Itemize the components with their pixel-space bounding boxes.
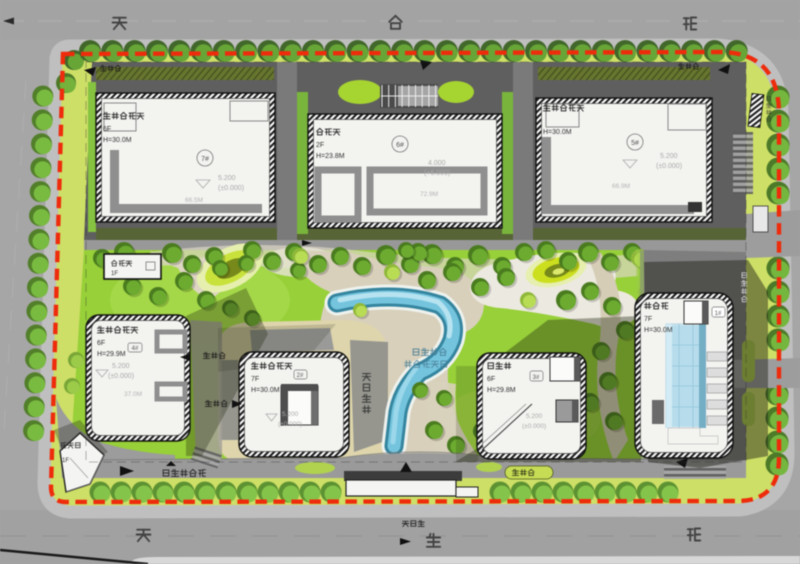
svg-text:7#: 7# xyxy=(201,156,209,163)
svg-text:4.000: 4.000 xyxy=(428,160,446,167)
svg-text:5.200: 5.200 xyxy=(526,413,543,420)
svg-text:(±0.000): (±0.000) xyxy=(278,421,302,428)
svg-text:1F: 1F xyxy=(111,271,118,277)
svg-text:H=30.0M: H=30.0M xyxy=(644,327,673,334)
svg-text:6F: 6F xyxy=(487,376,495,383)
svg-text:(±0.000): (±0.000) xyxy=(218,185,244,192)
svg-text:6F: 6F xyxy=(103,126,111,133)
svg-text:(±0.000): (±0.000) xyxy=(108,373,134,380)
svg-text:1#: 1# xyxy=(715,311,722,317)
svg-text:H=30.0M: H=30.0M xyxy=(543,129,572,136)
svg-text:H=29.9M: H=29.9M xyxy=(97,351,126,358)
svg-text:37.0M: 37.0M xyxy=(124,391,142,398)
svg-text:1F: 1F xyxy=(62,458,69,464)
svg-text:5.200: 5.200 xyxy=(282,411,299,418)
svg-text:7F: 7F xyxy=(251,376,259,383)
svg-text:66.9M: 66.9M xyxy=(612,183,630,190)
svg-text:2#: 2# xyxy=(297,373,304,379)
svg-text:6F: 6F xyxy=(97,340,105,347)
svg-text:2F: 2F xyxy=(316,142,324,149)
svg-text:H=29.8M: H=29.8M xyxy=(487,387,516,394)
svg-text:(+6.000): (+6.000) xyxy=(424,170,450,177)
svg-text:6#: 6# xyxy=(396,142,404,149)
svg-text:H=30.0M: H=30.0M xyxy=(251,387,280,394)
svg-text:5#: 5# xyxy=(631,140,639,147)
svg-text:5.200: 5.200 xyxy=(112,363,130,370)
svg-text:(±0.000): (±0.000) xyxy=(522,423,546,430)
svg-text:3#: 3# xyxy=(533,375,540,381)
svg-text:72.9M: 72.9M xyxy=(420,191,438,198)
svg-text:5.200: 5.200 xyxy=(218,175,236,182)
svg-text:H=30.0M: H=30.0M xyxy=(103,137,132,144)
svg-text:7F: 7F xyxy=(644,316,652,323)
svg-text:4#: 4# xyxy=(132,346,139,352)
svg-text:66.5M: 66.5M xyxy=(185,197,203,204)
svg-text:(±0.000): (±0.000) xyxy=(656,163,682,170)
svg-text:5.200: 5.200 xyxy=(660,153,678,160)
svg-text:H=23.8M: H=23.8M xyxy=(316,153,345,160)
